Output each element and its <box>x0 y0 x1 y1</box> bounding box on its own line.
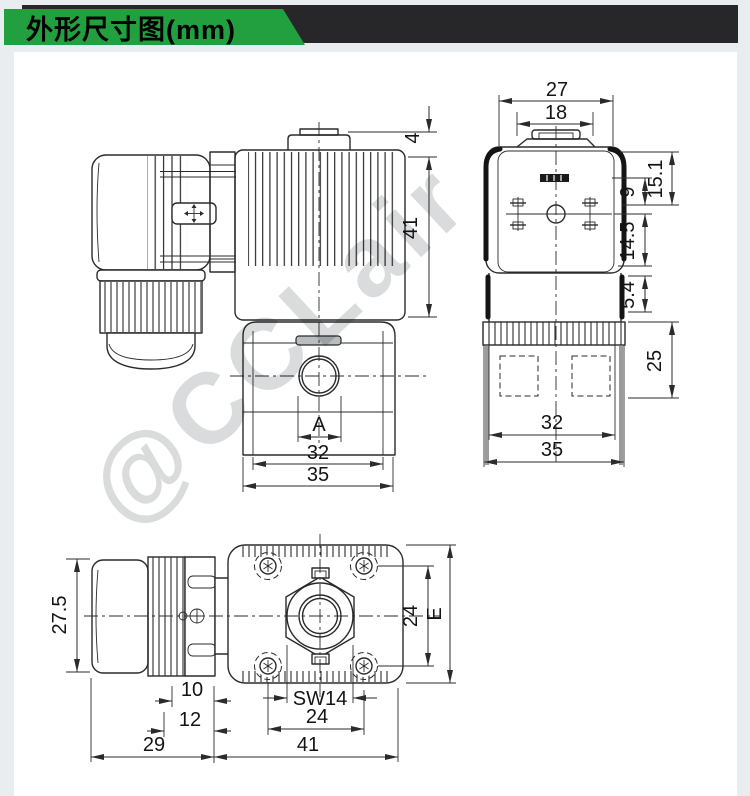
dim-label-18: 18 <box>545 102 567 124</box>
dim-label-25: 25 <box>644 350 666 372</box>
top-view-drawing: 27.5 10 12 29 41 <box>49 534 456 763</box>
dim-label-E: E <box>424 607 446 620</box>
dim-label-24-right: 24 <box>400 605 422 627</box>
dim-label-5-4: 5.4 <box>617 281 639 309</box>
section-title-banner: 外形尺寸图(mm) <box>4 9 305 45</box>
dim-label-14-5: 14.5 <box>617 222 639 261</box>
solenoid-coil <box>235 129 405 320</box>
valve-body-front <box>483 273 625 467</box>
dim-label-24-bottom: 24 <box>306 706 328 728</box>
dim-label-27: 27 <box>546 79 568 101</box>
dim-label-27-5: 27.5 <box>49 596 71 635</box>
front-view-dimensions: 27 18 15.1 9 14.5 <box>484 79 679 462</box>
dim-label-32-side: 32 <box>307 442 329 464</box>
dim-label-A: A <box>312 414 326 436</box>
dimension-drawing: 4 41 A 32 35 <box>14 52 737 796</box>
dim-label-4: 4 <box>402 132 424 143</box>
dim-label-35-side: 35 <box>307 464 329 486</box>
connector-front <box>486 130 624 273</box>
dim-label-32-front: 32 <box>541 412 563 434</box>
connector-top <box>92 557 232 676</box>
dim-label-15-1: 15.1 <box>645 160 667 199</box>
catalog-page: 外形尺寸图(mm) <box>0 0 750 796</box>
drawing-panel: 4 41 A 32 35 <box>14 52 737 796</box>
section-title: 外形尺寸图(mm) <box>4 8 236 47</box>
dim-label-41: 41 <box>400 217 422 239</box>
valve-body-top <box>228 545 403 683</box>
dim-label-29: 29 <box>143 734 165 756</box>
side-view-drawing: 4 41 A 32 35 <box>92 106 437 492</box>
dim-label-41-top: 41 <box>297 734 319 756</box>
cable-gland <box>97 270 205 369</box>
connector-housing <box>92 152 236 272</box>
front-view-drawing: 27 18 15.1 9 14.5 <box>483 79 679 467</box>
dim-label-10: 10 <box>181 679 203 701</box>
dim-label-9: 9 <box>617 186 639 197</box>
dim-label-12: 12 <box>179 709 201 731</box>
dim-label-35-front: 35 <box>541 439 563 461</box>
